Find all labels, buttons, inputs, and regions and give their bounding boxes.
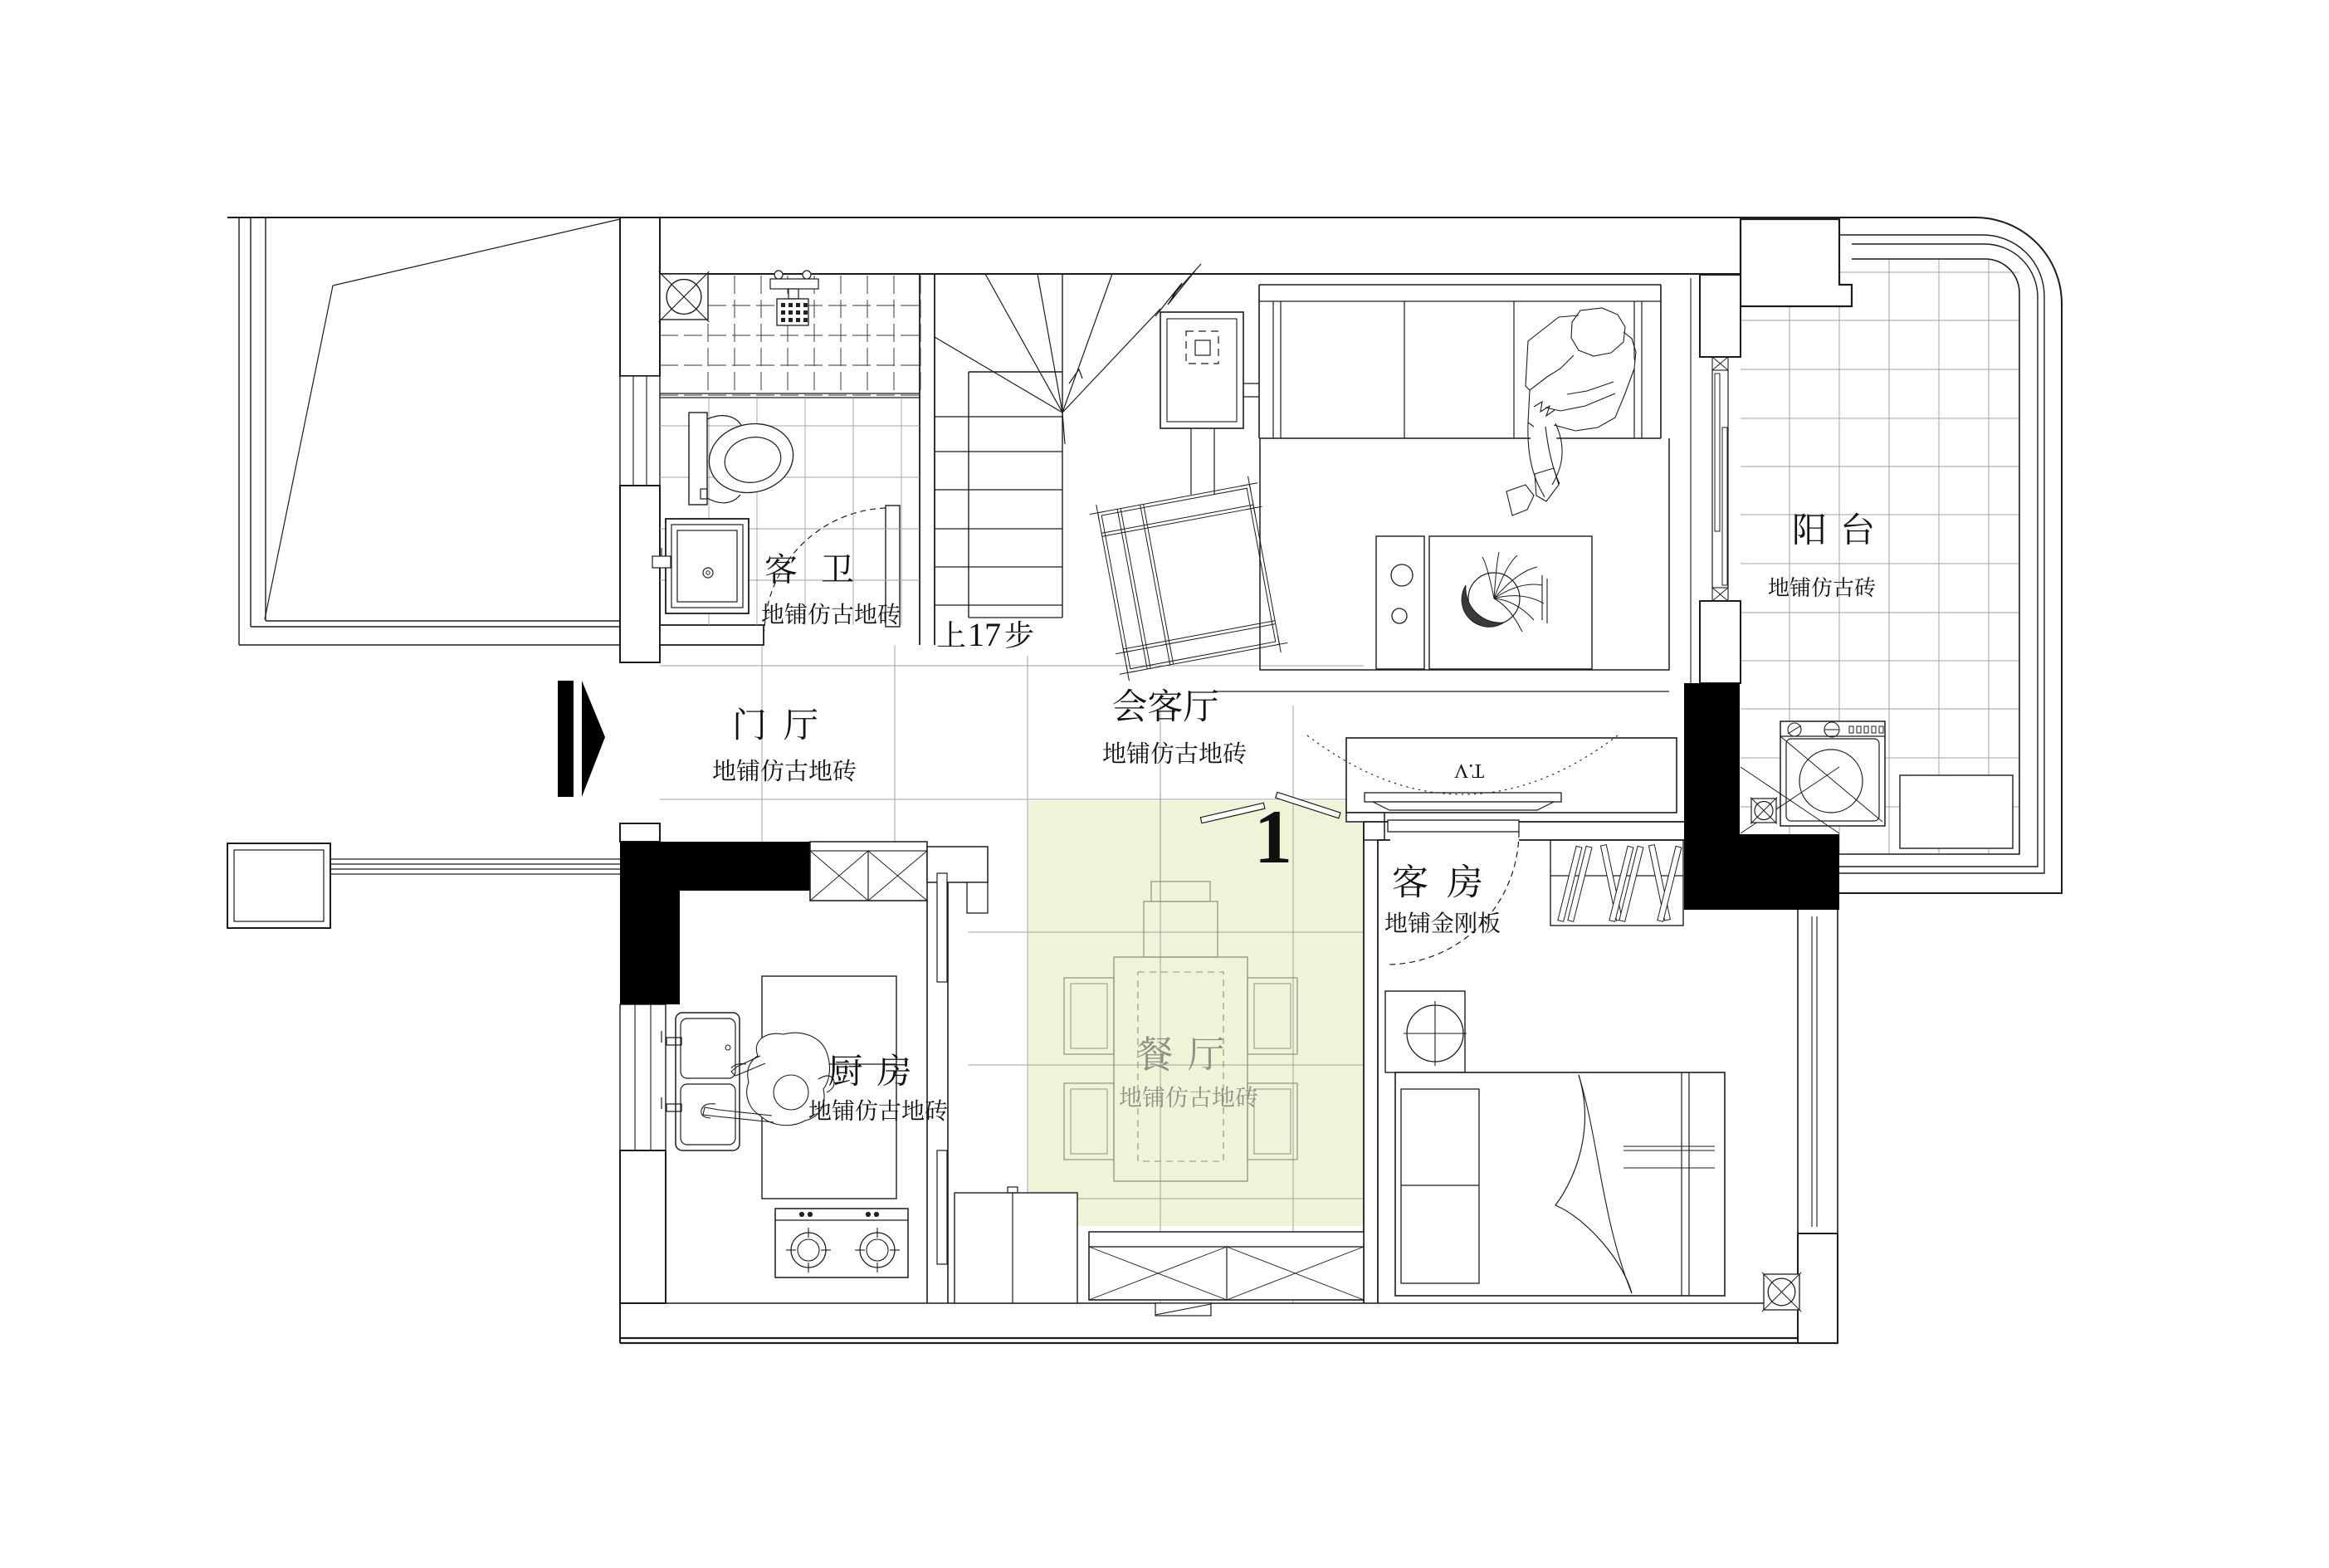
svg-text:T.V: T.V	[1453, 760, 1484, 781]
svg-text:17: 17	[968, 616, 1001, 653]
